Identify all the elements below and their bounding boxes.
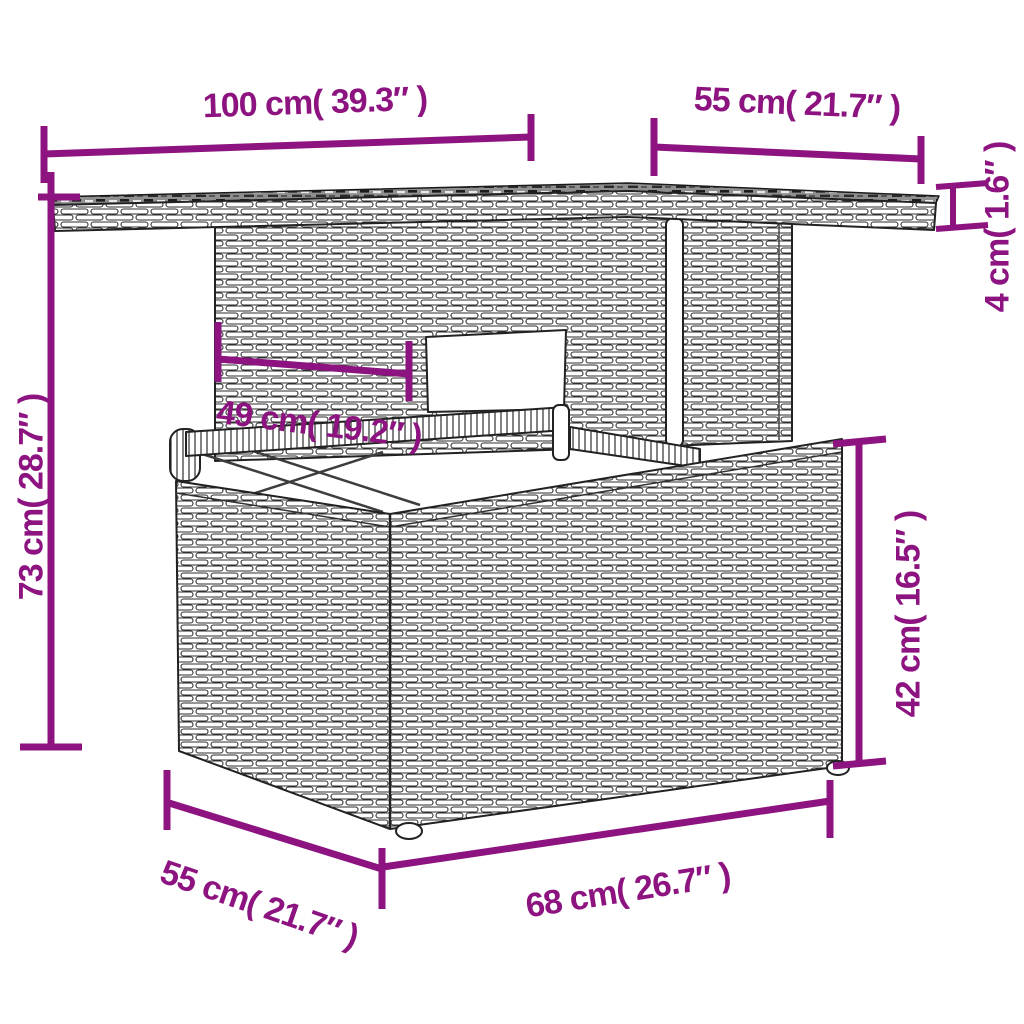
dimension-label-tabletop-width: 100 cm( 39.3″ ) xyxy=(202,80,428,127)
product-dimension-diagram: 100 cm( 39.3″ ) 55 cm( 21.7″ ) 4 cm( 1.6… xyxy=(0,0,1024,1024)
pedestal-side-wall xyxy=(668,216,792,446)
base-right-face xyxy=(390,439,842,829)
table-line-drawing xyxy=(0,0,1024,1024)
table-figure xyxy=(48,183,939,839)
dimension-label-base-height: 42 cm( 16.5″ ) xyxy=(890,511,929,717)
dimension-line-tabletop-width xyxy=(44,114,531,183)
dimension-line-tabletop-depth xyxy=(654,118,921,184)
rail-bracket xyxy=(553,405,569,460)
dimension-label-tabletop-thickness: 4 cm( 1.6″ ) xyxy=(979,142,1018,313)
dimension-label-total-height: 73 cm( 28.7″ ) xyxy=(13,394,52,600)
pedestal-corner-post xyxy=(666,218,683,447)
table-foot xyxy=(396,823,422,839)
base-left-face xyxy=(176,481,390,829)
